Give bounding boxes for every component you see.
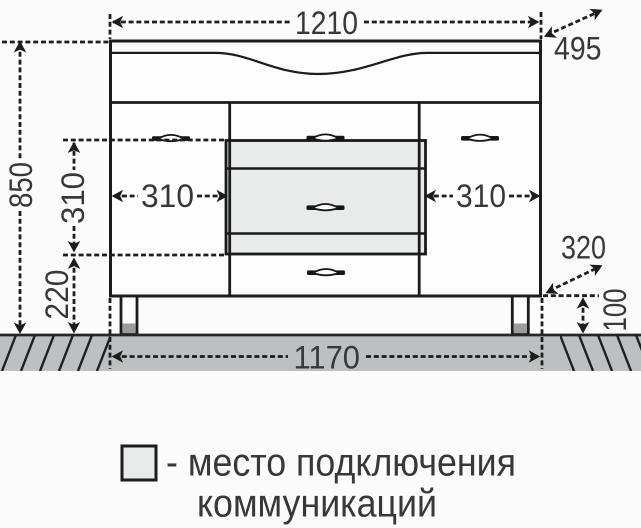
svg-text:495: 495 bbox=[554, 31, 602, 67]
svg-text:310: 310 bbox=[141, 178, 194, 214]
svg-text:220: 220 bbox=[39, 270, 75, 320]
svg-text:320: 320 bbox=[561, 230, 606, 266]
svg-text:1170: 1170 bbox=[294, 340, 361, 376]
svg-text:коммуникаций: коммуникаций bbox=[197, 483, 437, 526]
svg-text:850: 850 bbox=[3, 162, 39, 208]
svg-text:310: 310 bbox=[55, 172, 91, 224]
svg-text:310: 310 bbox=[456, 178, 506, 214]
svg-text:- место подключения: - место подключения bbox=[166, 442, 516, 485]
svg-text:1210: 1210 bbox=[295, 5, 358, 41]
svg-text:100: 100 bbox=[597, 289, 633, 332]
